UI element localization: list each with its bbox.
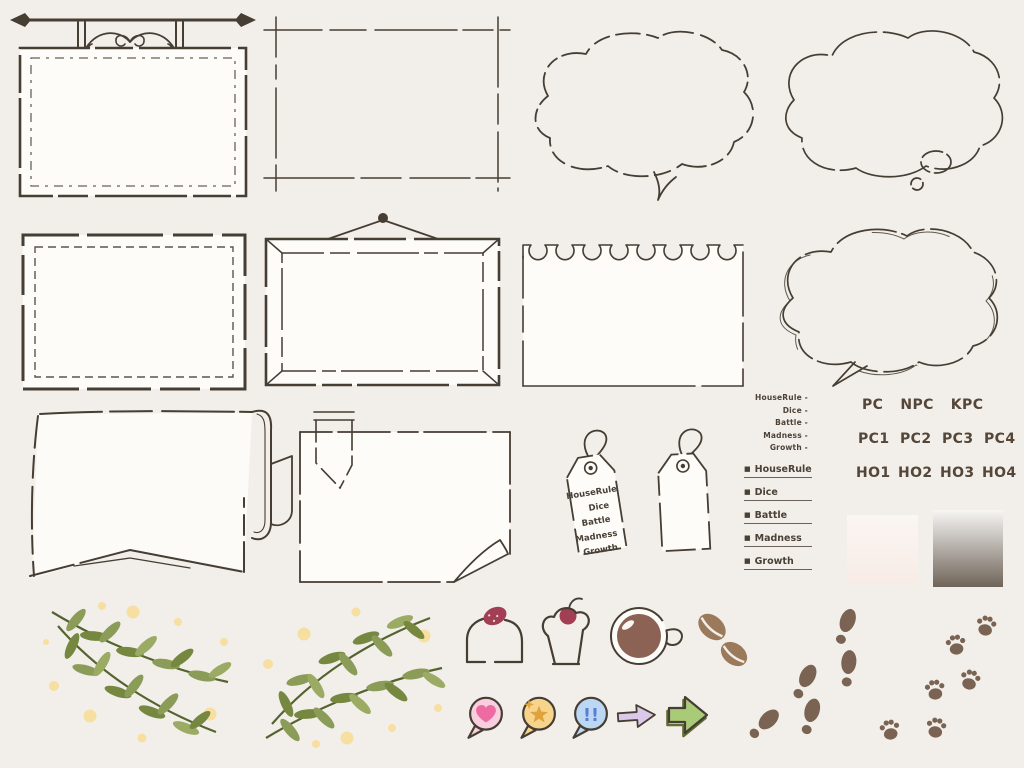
stitched-frame	[20, 232, 248, 392]
double-line-cloud-bubble	[757, 218, 1009, 390]
label-row-ho-numbers: HO1HO2 HO3HO4	[856, 465, 1024, 481]
bullet-list: ■ HouseRule ■ Dice ■ Battle ■ Madness ■ …	[744, 462, 812, 577]
green-arrow-icon	[666, 694, 714, 740]
paper-gradient-swatch	[847, 515, 918, 583]
olive-branch-left	[38, 598, 243, 750]
hang-tag-blank	[646, 426, 723, 557]
hang-tag-labeled: HouseRule Dice Battle Madness Growth	[550, 425, 639, 562]
dash-list-item: Madness -	[742, 430, 808, 443]
asset-sheet: HouseRule Dice Battle Madness Growth Hou…	[0, 0, 1024, 768]
bullet-list-item: ■ HouseRule	[744, 462, 812, 478]
hanging-picture-frame	[261, 208, 504, 394]
torn-notebook-paper	[519, 228, 749, 393]
hanging-sign-board	[8, 6, 258, 202]
trim-mark-frame	[260, 14, 516, 194]
dash-list-item: Dice -	[742, 405, 808, 418]
star-speech-icon	[517, 694, 561, 740]
dash-list-item: Growth -	[742, 442, 808, 455]
dash-list-item: HouseRule -	[742, 392, 808, 405]
coffee-cup-top-icon	[606, 604, 688, 672]
purple-arrow-icon	[615, 700, 659, 733]
shoe-footprints	[750, 606, 862, 740]
dashed-cloud-bubble	[512, 24, 762, 200]
dash-list: HouseRule - Dice - Battle - Madness - Gr…	[742, 392, 808, 455]
svg-text:!!: !!	[583, 706, 599, 726]
square-bullet-icon: ■	[744, 512, 751, 519]
tag-text: HouseRule Dice Battle Madness Growth	[565, 482, 628, 562]
brown-gradient-swatch	[933, 510, 1003, 587]
cherry-cupcake-icon	[536, 596, 600, 670]
paper-with-ribbon-bookmark	[292, 408, 522, 592]
dash-list-item: Battle -	[742, 417, 808, 430]
thought-cloud-bubble	[760, 22, 1014, 198]
swallowtail-banner	[12, 402, 294, 594]
square-bullet-icon: ■	[744, 535, 751, 542]
bullet-list-item: ■ Growth	[744, 554, 812, 570]
bullet-list-item: ■ Battle	[744, 508, 812, 524]
square-bullet-icon: ■	[744, 489, 751, 496]
bullet-list-item: ■ Madness	[744, 531, 812, 547]
square-bullet-icon: ■	[744, 558, 751, 565]
paw-prints	[878, 608, 1012, 748]
bullet-list-item: ■ Dice	[744, 485, 812, 501]
strawberry-cake-icon	[459, 604, 531, 666]
label-row-pc: PCNPCKPC	[862, 397, 1000, 413]
label-row-pc-numbers: PC1PC2 PC3PC4	[858, 431, 1024, 447]
heart-speech-icon	[464, 694, 508, 740]
square-bullet-icon: ■	[744, 466, 751, 473]
olive-branch-right	[252, 600, 457, 752]
coffee-beans-icon	[694, 610, 756, 674]
exclaim-speech-icon: !!	[569, 694, 613, 740]
